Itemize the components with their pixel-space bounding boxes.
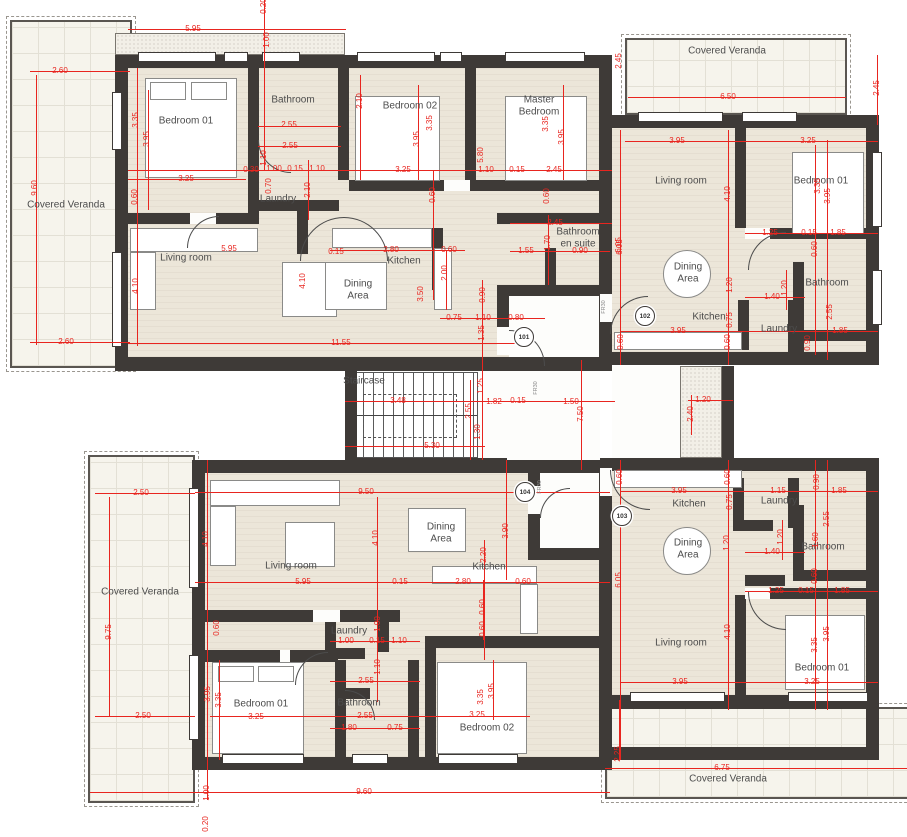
dimension-label: 1.00 — [203, 785, 211, 801]
dimension-label: 0.60 — [479, 621, 487, 637]
room-label: Covered Veranda — [688, 45, 766, 57]
dimension-label: 1.00 — [263, 32, 271, 48]
dimension-label: 0.60 — [543, 188, 551, 204]
dimension-label: 1.35 — [478, 325, 486, 341]
room-label: Dining Area — [674, 262, 702, 285]
dimension-label: 5.80 — [477, 147, 485, 163]
room-label: Master Bedroom — [519, 95, 560, 118]
dimension-label: 1.70 — [544, 235, 552, 251]
room-label: Bathroom — [801, 541, 844, 553]
dimension-label: 0.30 — [243, 166, 259, 174]
dimension-label: 0.60 — [479, 599, 487, 615]
dimension-label: 3.95 — [671, 487, 687, 495]
dimension-label: 3.95 — [143, 131, 151, 147]
dimension-label: 1.10 — [309, 165, 325, 173]
dimension-label: 0.60 — [811, 241, 819, 257]
dimension-label: 1.20 — [723, 535, 731, 551]
room-label: Bathroom — [337, 697, 380, 709]
dimension-label: 1.00 — [338, 637, 354, 645]
dimension-label: 2.10 — [356, 93, 364, 109]
dimension-label: 1.30 — [474, 424, 482, 440]
dimension-label: 1.00 — [266, 165, 282, 173]
room-label: Kitchen — [672, 498, 705, 510]
dimension-label: 2.55 — [357, 712, 373, 720]
dimension-label: 3.95 — [823, 626, 831, 642]
room-label: Living room — [655, 637, 707, 649]
dimension-label: 6.05 — [616, 239, 624, 255]
dimension-label: 0.70 — [265, 178, 273, 194]
dimension-label: 3.95 — [488, 683, 496, 699]
fire-door-label: FR30 — [533, 381, 539, 394]
dimension-label: 2.60 — [58, 338, 74, 346]
room-label: Kitchen — [387, 255, 420, 267]
dimension-label: 2.45 — [546, 166, 562, 174]
dimension-label: 3.25 — [395, 166, 411, 174]
room-label: Kitchen — [472, 561, 505, 573]
dimension-label: 2.80 — [455, 578, 471, 586]
dimension-label: 0.80 — [508, 314, 524, 322]
dimension-label: 1.20 — [726, 277, 734, 293]
dimension-label: 2.25 — [614, 746, 622, 762]
dimension-label: 1.00 — [374, 616, 382, 632]
dimension-label: 0.15 — [798, 587, 814, 595]
fire-door-label: FR30 — [601, 300, 607, 313]
dimension-label: 4.10 — [724, 624, 732, 640]
dimension-label: 0.90 — [479, 287, 487, 303]
dimension-label: 5.95 — [221, 245, 237, 253]
dimension-label: 2.00 — [441, 265, 449, 281]
dimension-label: 0.20 — [260, 0, 268, 14]
dimension-label: 2.55 — [826, 304, 834, 320]
dimension-label: 9.60 — [31, 180, 39, 196]
room-label: Laundry — [260, 193, 296, 205]
dimension-label: 1.40 — [764, 548, 780, 556]
dimension-label: 2.55 — [282, 142, 298, 150]
dimension-label: 4.10 — [202, 531, 210, 547]
dimension-label: 1.85 — [831, 487, 847, 495]
dimension-label: 11.55 — [331, 339, 350, 347]
dimension-label: 1.10 — [391, 637, 407, 645]
dimension-label: 3.95 — [824, 188, 832, 204]
dimension-label: 3.95 — [672, 678, 688, 686]
dimension-label: 0.15 — [369, 637, 385, 645]
dimension-label: 3.35 — [132, 112, 140, 128]
dimension-label: 0.15 — [287, 165, 303, 173]
dimension-label: 4.10 — [724, 186, 732, 202]
dimension-label: 0.90 — [804, 335, 812, 351]
dimension-label: 4.10 — [132, 278, 140, 294]
dimension-label: 0.20 — [202, 816, 210, 832]
dimension-label: 1.60 — [812, 532, 820, 548]
dimension-label: 1.20 — [781, 280, 789, 296]
dimension-label: 2.60 — [52, 67, 68, 75]
dimension-label: 4.10 — [299, 273, 307, 289]
dimension-label: 3.25 — [469, 711, 485, 719]
dimension-label: 3.95 — [204, 686, 212, 702]
room-label: Living room — [265, 560, 317, 572]
dimension-label: 2.45 — [873, 80, 881, 96]
room-label: Covered Veranda — [689, 773, 767, 785]
dimension-label: 0.75 — [726, 312, 734, 328]
labels-layer: 5.950.201.002.609.602.603.353.953.250.60… — [0, 0, 907, 837]
dimension-label: 0.90 — [572, 247, 588, 255]
room-label: Dining Area — [674, 538, 702, 561]
room-label: Covered Veranda — [27, 199, 105, 211]
room-label: Living room — [160, 252, 212, 264]
dimension-label: 0.75 — [446, 314, 462, 322]
dimension-label: 7.50 — [577, 406, 585, 422]
dimension-label: 3.95 — [669, 137, 685, 145]
dimension-label: 0.60 — [213, 620, 221, 636]
dimension-label: 2.50 — [135, 712, 151, 720]
dimension-label: 1.40 — [764, 293, 780, 301]
dimension-label: 1.25 — [768, 587, 784, 595]
dimension-label: 4.10 — [372, 530, 380, 546]
dimension-label: 3.25 — [248, 713, 264, 721]
dimension-label: 6.75 — [714, 764, 730, 772]
unit-number-badge: 104 — [515, 482, 535, 502]
dimension-label: 2.50 — [133, 489, 149, 497]
dimension-label: 1.85 — [830, 229, 846, 237]
floor-plan: 5.950.201.002.609.602.603.353.953.250.60… — [0, 0, 907, 837]
dimension-label: 0.60 — [616, 469, 624, 485]
room-label: Living room — [655, 175, 707, 187]
dimension-label: 3.50 — [417, 286, 425, 302]
dimension-label: 1.82 — [486, 398, 502, 406]
dimension-label: 0.15 — [509, 166, 525, 174]
room-label: Bedroom 01 — [159, 115, 213, 127]
dimension-label: 0.15 — [392, 578, 408, 586]
dimension-label: 1.55 — [518, 247, 534, 255]
dimension-label: 0.60 — [811, 568, 819, 584]
dimension-label: 0.60 — [131, 189, 139, 205]
dimension-label: 1.25 — [477, 378, 485, 394]
dimension-label: 3.35 — [542, 116, 550, 132]
room-label: Kitchen — [692, 311, 725, 323]
dimension-label: 0.60 — [617, 334, 625, 350]
dimension-label: 0.60 — [724, 469, 732, 485]
dimension-label: 3.95 — [558, 129, 566, 145]
dimension-label: 5.95 — [185, 25, 201, 33]
dimension-label: 2.55 — [281, 121, 297, 129]
unit-number-badge: 102 — [635, 306, 655, 326]
dimension-label: 6.05 — [615, 572, 623, 588]
dimension-label: 2.40 — [687, 406, 695, 422]
dimension-label: 1.25 — [762, 229, 778, 237]
room-label: Laundry — [761, 495, 797, 507]
dimension-label: 3.90 — [502, 523, 510, 539]
room-label: Bedroom 02 — [460, 722, 514, 734]
dimension-label: 9.50 — [358, 488, 374, 496]
dimension-label: 3.35 — [215, 692, 223, 708]
dimension-label: 2.10 — [304, 182, 312, 198]
dimension-label: 3.35 — [811, 637, 819, 653]
dimension-label: 1.10 — [374, 659, 382, 675]
dimension-label: 3.35 — [477, 689, 485, 705]
dimension-label: 0.60 — [441, 246, 457, 254]
dimension-label: 3.35 — [814, 178, 822, 194]
dimension-label: 1.85 — [834, 587, 850, 595]
room-label: Bedroom 02 — [383, 100, 437, 112]
dimension-label: 1.20 — [695, 396, 711, 404]
room-label: Staircase — [343, 375, 385, 387]
dimension-label: 9.60 — [356, 788, 372, 796]
fire-door-label: FR30 — [537, 480, 543, 493]
dimension-label: 1.10 — [478, 166, 494, 174]
dimension-label: 2.20 — [480, 547, 488, 563]
dimension-label: 2.55 — [465, 403, 473, 419]
dimension-label: 0.60 — [429, 187, 437, 203]
dimension-label: 3.25 — [800, 137, 816, 145]
dimension-label: 0.15 — [510, 397, 526, 405]
unit-number-badge: 101 — [514, 327, 534, 347]
dimension-label: 3.48 — [390, 397, 406, 405]
room-label: Covered Veranda — [101, 586, 179, 598]
dimension-label: 5.95 — [295, 578, 311, 586]
dimension-label: 1.85 — [832, 327, 848, 335]
room-label: Dining Area — [427, 522, 455, 545]
dimension-label: 0.60 — [724, 334, 732, 350]
room-label: Bedroom 01 — [795, 662, 849, 674]
dimension-label: 0.15 — [801, 229, 817, 237]
dimension-label: 1.20 — [777, 529, 785, 545]
room-label: Bathroom — [805, 277, 848, 289]
dimension-label: 1.80 — [341, 724, 357, 732]
dimension-label: 2.45 — [547, 219, 563, 227]
room-label: Bathroom — [271, 94, 314, 106]
dimension-label: 0.75 — [387, 724, 403, 732]
dimension-label: 2.55 — [358, 677, 374, 685]
dimension-label: 1.10 — [475, 314, 491, 322]
dimension-label: 6.50 — [720, 93, 736, 101]
room-label: Bedroom 01 — [234, 698, 288, 710]
dimension-label: 5.30 — [424, 442, 440, 450]
dimension-label: 1.15 — [770, 487, 786, 495]
room-label: Dining Area — [344, 279, 372, 302]
dimension-label: 0.60 — [515, 578, 531, 586]
room-label: Laundry — [761, 323, 797, 335]
dimension-label: 2.55 — [823, 511, 831, 527]
dimension-label: 3.25 — [178, 175, 194, 183]
dimension-label: 3.95 — [413, 131, 421, 147]
dimension-label: 9.75 — [105, 624, 113, 640]
unit-number-badge: 103 — [612, 506, 632, 526]
dimension-label: 0.15 — [328, 248, 344, 256]
dimension-label: 3.25 — [804, 678, 820, 686]
dimension-label: 0.75 — [726, 494, 734, 510]
dimension-label: 3.35 — [426, 115, 434, 131]
dimension-label: 2.45 — [615, 53, 623, 69]
dimension-label: 0.90 — [813, 474, 821, 490]
dimension-label: 2.80 — [383, 246, 399, 254]
dimension-label: 3.95 — [670, 327, 686, 335]
